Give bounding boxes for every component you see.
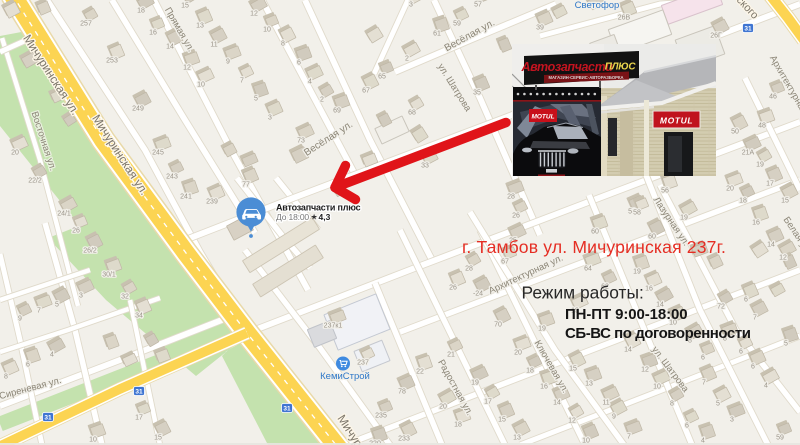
svg-text:17: 17 [766,181,774,188]
svg-text:19: 19 [471,380,479,387]
svg-text:9: 9 [18,316,22,323]
svg-text:8: 8 [4,374,8,381]
svg-text:17: 17 [484,399,492,406]
svg-text:10: 10 [653,384,661,391]
svg-text:7: 7 [627,434,631,441]
svg-text:59: 59 [453,21,461,28]
svg-text:16: 16 [752,220,760,227]
svg-text:11: 11 [602,400,609,407]
svg-text:★: ★ [311,213,318,222]
svg-text:Режим работы:: Режим работы: [522,283,644,303]
svg-text:60: 60 [591,229,599,236]
svg-text:18: 18 [454,422,462,429]
svg-text:6: 6 [685,423,689,430]
svg-text:26: 26 [512,213,520,220]
svg-text:ПН-ПТ 9:00-18:00: ПН-ПТ 9:00-18:00 [565,306,688,323]
svg-text:48: 48 [758,123,766,130]
svg-text:16: 16 [149,30,157,37]
svg-text:245: 245 [152,150,164,157]
svg-text:31: 31 [135,389,143,396]
svg-text:20: 20 [11,150,19,157]
svg-text:3: 3 [268,115,272,122]
svg-text:6: 6 [751,364,755,371]
svg-text:12: 12 [250,11,258,18]
svg-text:249: 249 [132,106,144,113]
svg-text:15: 15 [569,366,577,373]
svg-text:8: 8 [670,401,674,408]
svg-text:22: 22 [416,369,424,376]
svg-text:14: 14 [624,347,632,354]
svg-text:КемиСтрой: КемиСтрой [320,371,370,382]
svg-text:69: 69 [333,108,341,115]
svg-text:5: 5 [254,96,258,103]
svg-text:26/2: 26/2 [83,248,97,255]
svg-text:78: 78 [398,389,406,396]
svg-text:12: 12 [183,65,191,72]
svg-text:67: 67 [362,88,370,95]
svg-text:13: 13 [513,435,521,442]
svg-text:До 18:00: До 18:00 [276,212,309,222]
svg-text:21: 21 [447,352,455,359]
svg-text:Светофор: Светофор [575,0,620,11]
svg-text:9: 9 [612,414,616,421]
svg-text:6: 6 [739,349,743,356]
svg-text:14: 14 [166,44,174,51]
svg-text:14: 14 [553,400,561,407]
svg-text:58: 58 [633,210,641,217]
svg-text:12: 12 [568,418,576,425]
svg-text:5: 5 [784,341,788,348]
svg-text:18: 18 [137,8,145,15]
svg-text:33: 33 [421,163,429,170]
svg-text:19: 19 [680,215,688,222]
svg-text:2: 2 [320,97,324,104]
svg-text:28: 28 [465,266,473,273]
svg-text:7: 7 [240,78,244,85]
svg-text:31: 31 [44,415,52,422]
svg-text:257: 257 [80,21,92,28]
svg-text:237к1: 237к1 [324,323,343,330]
svg-text:28: 28 [507,194,515,201]
svg-text:11: 11 [210,42,217,49]
svg-text:18: 18 [739,198,747,205]
svg-text:15: 15 [498,417,506,424]
svg-text:26В: 26В [618,15,631,22]
svg-text:СБ-ВС по договоренности: СБ-ВС по договоренности [565,325,751,342]
svg-text:56: 56 [661,188,669,195]
svg-text:13: 13 [196,23,204,30]
svg-text:68: 68 [408,110,416,117]
svg-text:73: 73 [297,138,305,145]
svg-text:14: 14 [767,242,775,249]
svg-text:20: 20 [514,350,522,357]
svg-text:10: 10 [197,82,205,89]
svg-text:235: 235 [375,413,387,420]
svg-text:3: 3 [79,293,83,300]
svg-text:4,3: 4,3 [319,212,331,222]
svg-text:243: 243 [166,174,178,181]
svg-text:253: 253 [106,58,118,65]
svg-text:5: 5 [716,401,720,408]
svg-text:6: 6 [744,297,748,304]
svg-text:19: 19 [538,326,546,333]
svg-text:4: 4 [50,352,54,359]
svg-text:46: 46 [769,94,777,101]
svg-text:239: 239 [206,199,218,206]
svg-text:6: 6 [26,362,30,369]
svg-text:34: 34 [135,313,143,320]
svg-text:70: 70 [494,322,502,329]
svg-text:26: 26 [72,228,80,235]
svg-text:50: 50 [731,129,739,136]
svg-text:12: 12 [779,255,787,262]
svg-text:64: 64 [584,266,592,273]
svg-text:16: 16 [645,286,653,293]
svg-text:-24: -24 [473,291,483,298]
svg-text:6: 6 [297,60,301,67]
svg-text:65: 65 [378,74,386,81]
svg-text:67: 67 [501,259,509,266]
svg-text:19: 19 [756,162,764,169]
svg-text:Автозапчасти плюс: Автозапчасти плюс [276,202,361,212]
svg-text:20: 20 [726,186,734,193]
svg-text:6: 6 [701,355,705,362]
svg-text:5: 5 [55,302,59,309]
svg-text:26Г: 26Г [710,33,722,40]
svg-text:7: 7 [37,308,41,315]
svg-text:3: 3 [409,2,413,9]
svg-text:9: 9 [226,59,230,66]
svg-text:МАГАЗИН·СЕРВИС·АВТОРАЗБОРКА: МАГАЗИН·СЕРВИС·АВТОРАЗБОРКА [548,75,623,80]
svg-text:ПЛЮС: ПЛЮС [605,62,637,73]
svg-text:3: 3 [730,417,734,424]
svg-text:13: 13 [585,381,593,388]
svg-text:30/1: 30/1 [102,272,116,279]
svg-text:7: 7 [702,380,706,387]
svg-text:57: 57 [474,2,482,9]
svg-text:72: 72 [717,304,725,311]
svg-text:31: 31 [744,26,752,33]
svg-text:35: 35 [473,90,481,97]
svg-text:7: 7 [753,315,757,322]
svg-text:16: 16 [540,384,548,391]
svg-text:Автозапчасти: Автозапчасти [520,60,613,74]
svg-text:59: 59 [776,435,784,442]
svg-text:MOTUL: MOTUL [660,116,693,126]
svg-text:20: 20 [439,404,447,411]
svg-text:241: 241 [180,194,192,201]
svg-text:24/1: 24/1 [57,211,71,218]
svg-text:32: 32 [121,294,129,301]
svg-text:4: 4 [764,383,768,390]
svg-text:2: 2 [405,56,409,63]
svg-text:MOTUL: MOTUL [531,114,554,121]
svg-text:10: 10 [263,27,271,34]
svg-text:19: 19 [633,269,641,276]
svg-text:21А: 21А [742,150,755,157]
svg-text:31: 31 [283,406,291,413]
svg-text:18: 18 [526,368,534,375]
svg-text:233: 233 [398,436,410,443]
svg-text:15: 15 [154,435,162,442]
svg-text:15: 15 [781,198,789,205]
svg-text:г. Тамбов ул. Мичуринская 237г: г. Тамбов ул. Мичуринская 237г. [462,237,726,257]
svg-text:17: 17 [135,415,143,422]
svg-text:8: 8 [281,41,285,48]
svg-text:10: 10 [89,437,97,444]
svg-text:12: 12 [641,367,649,374]
svg-text:22/2: 22/2 [28,178,42,185]
svg-text:26: 26 [449,285,457,292]
svg-text:4: 4 [308,79,312,86]
svg-text:61: 61 [433,31,441,38]
svg-text:77: 77 [242,182,250,189]
svg-text:39: 39 [536,25,544,32]
svg-text:237: 237 [357,360,369,367]
svg-text:15: 15 [181,3,189,10]
